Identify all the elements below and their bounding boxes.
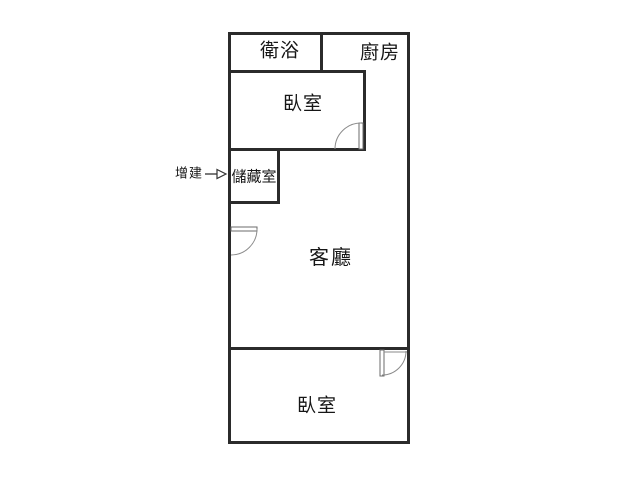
door-leaf-entry — [231, 227, 257, 231]
door-arc-entry — [231, 229, 257, 255]
wall-outer-left — [228, 32, 231, 444]
room-label-bedroom-top: 臥室 — [283, 95, 323, 114]
wall-bathroom-kitchen-divider — [320, 32, 323, 73]
wall-storage-right — [277, 148, 280, 204]
wall-storage-bottom — [228, 201, 280, 204]
room-label-bedroom-bottom: 臥室 — [297, 397, 337, 416]
extension-annotation-label: 增建 — [175, 167, 203, 180]
door-leaf-bedroom-top — [359, 123, 363, 149]
door-arc-bedroom-bottom — [382, 351, 406, 375]
extension-arrow — [205, 170, 226, 179]
floor-plan: 衛浴 廚房 臥室 儲藏室 客廳 臥室 增建 — [0, 0, 640, 480]
room-label-kitchen: 廚房 — [360, 44, 400, 63]
room-label-bathroom: 衛浴 — [260, 42, 300, 61]
door-arc-bedroom-top — [335, 123, 361, 149]
door-leaf-bedroom-bottom — [380, 350, 384, 376]
extension-arrow-head-icon — [217, 170, 226, 179]
wall-bedroom-top-bottom — [228, 148, 366, 151]
wall-bathroom-bottom — [228, 70, 366, 73]
wall-outer-bottom — [228, 441, 410, 444]
room-label-living-room: 客廳 — [309, 248, 353, 268]
wall-outer-right — [407, 32, 410, 444]
room-label-storage: 儲藏室 — [231, 170, 276, 185]
wall-outer-top — [228, 32, 410, 35]
